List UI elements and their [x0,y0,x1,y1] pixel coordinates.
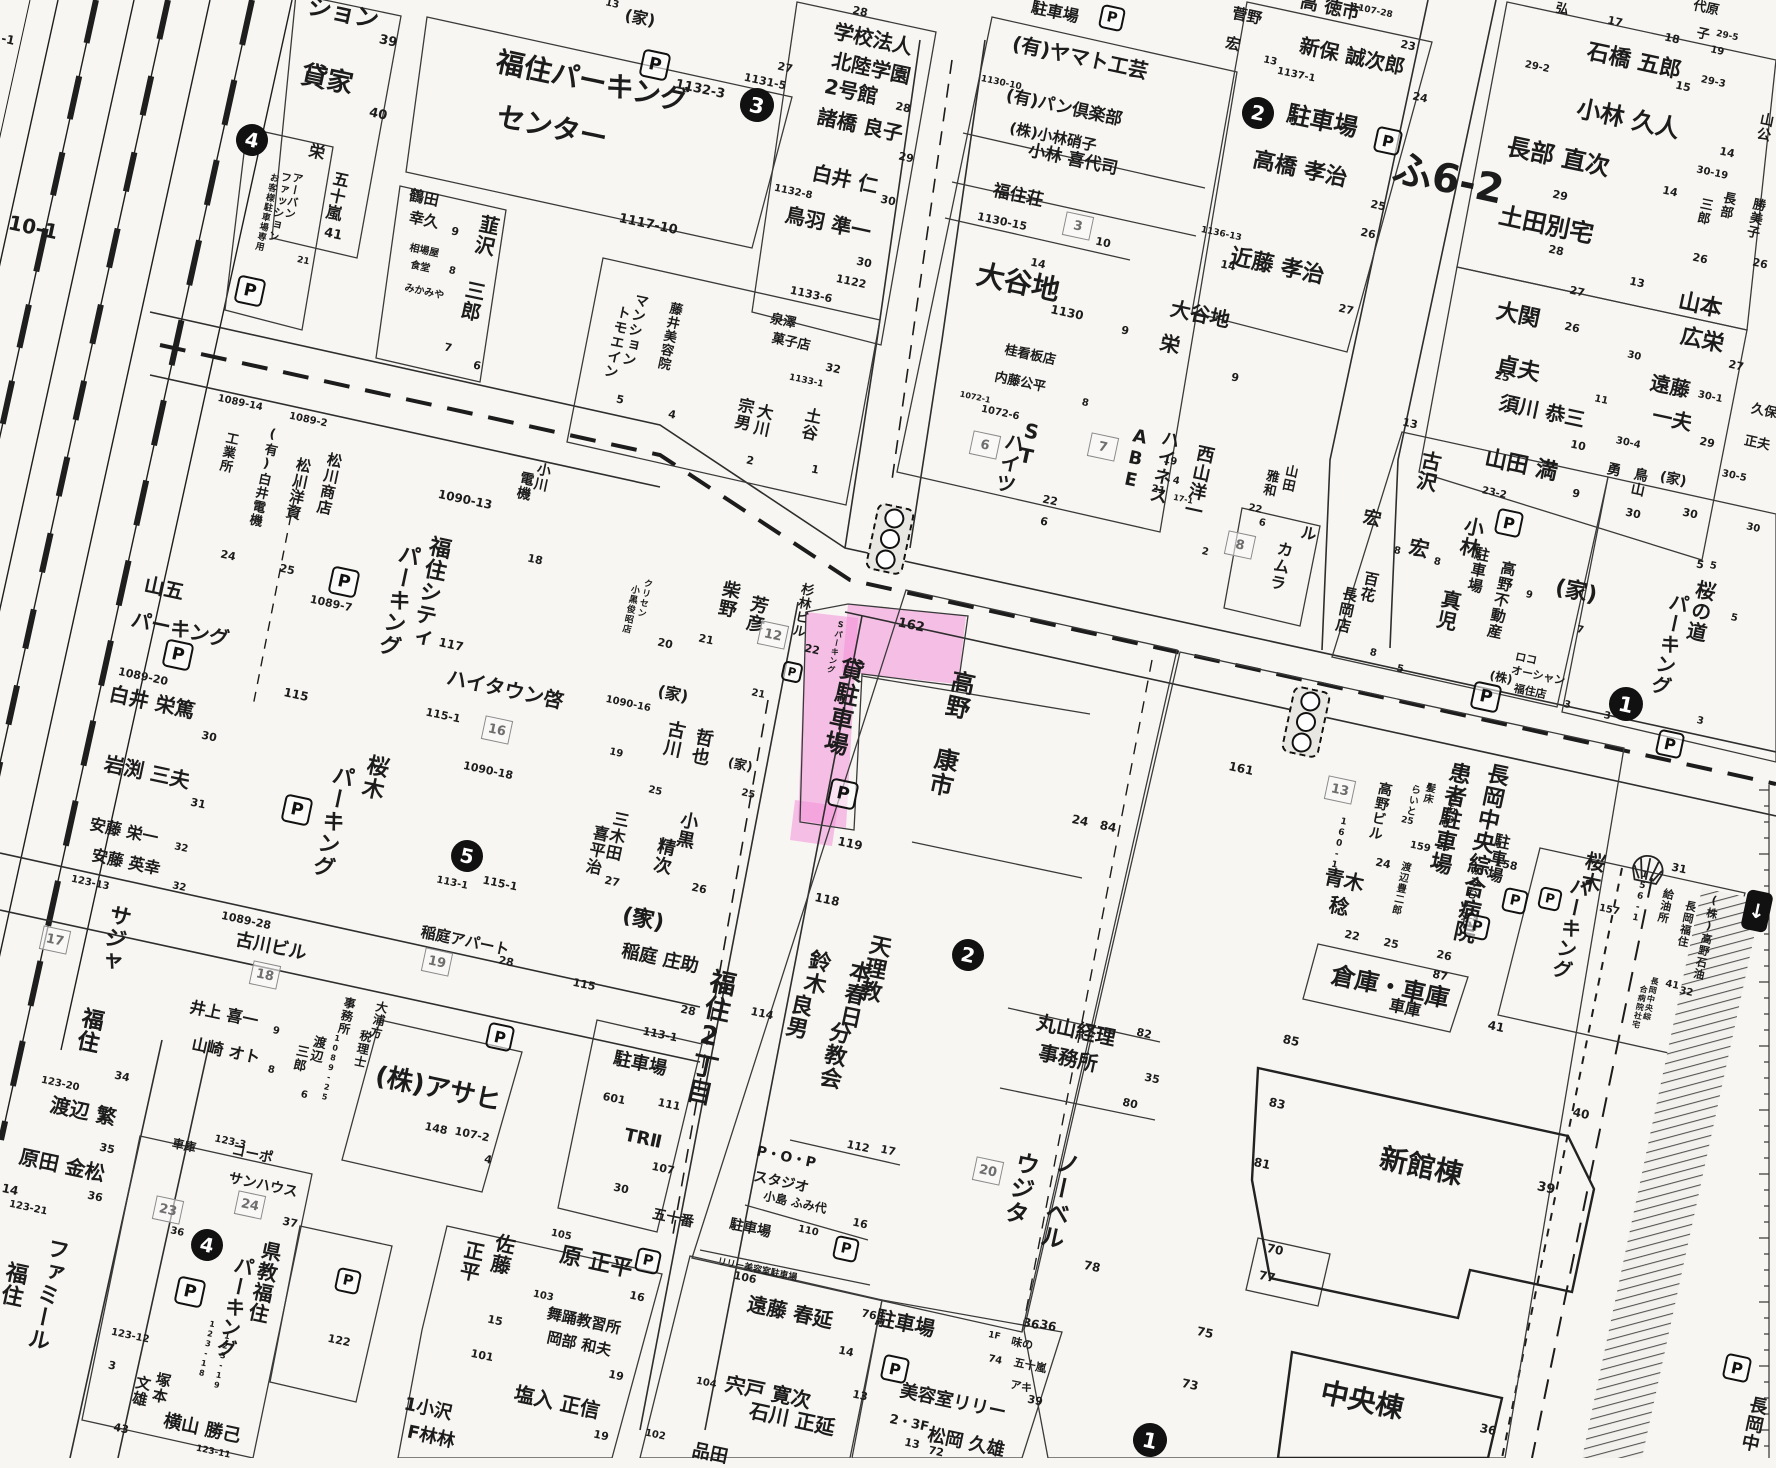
parking-icon: P [832,1235,860,1263]
parking-icon: P [1494,508,1525,539]
parking-icon: P [826,777,859,810]
parking-icon: P [634,1247,662,1275]
parking-icon: P [780,660,804,684]
parking-icon: P [1537,886,1563,912]
parking-icon: P [280,793,313,826]
parking-icon: P [1655,729,1686,760]
parking-icon: P [638,48,671,81]
parking-icon: P [1722,1353,1753,1384]
parking-icon: P [1463,913,1491,941]
residential-map: ション39貸家40栄五十嵐4121アーバンファッションお客様駐車場専用10-1-… [0,0,1776,1458]
parking-icon: P [173,1275,206,1308]
parking-icon: P [1501,887,1529,915]
hospital-buildings [1252,1068,1594,1458]
parking-icon: P [233,274,266,307]
map-label: ル [1297,523,1317,543]
map-label: -1 [0,32,16,47]
boundary-dashes [160,60,1776,1458]
parking-icon: P [161,638,194,671]
parking-icon: P [327,565,360,598]
parking-icon: P [485,1022,516,1053]
parking-icon: P [1469,680,1502,713]
parking-icon: P [1098,4,1126,32]
parking-icon: P [880,1354,911,1385]
parking-icon: P [334,1267,362,1295]
scale-ruler [1759,785,1769,1458]
parking-icon: P [1373,126,1404,157]
